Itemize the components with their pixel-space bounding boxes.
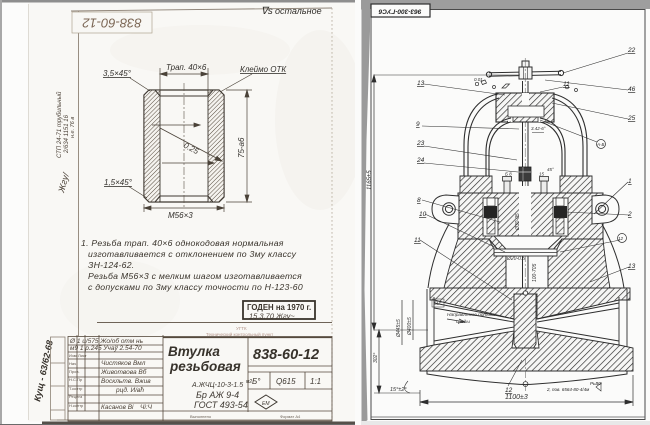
svg-text:Нач.: Нач. <box>69 361 77 366</box>
svg-text:13: 13 <box>417 80 425 87</box>
svg-text:РьВО: РьВО <box>590 381 602 386</box>
svg-text:8: 8 <box>417 197 421 204</box>
svg-text:м9 1 р.245 Учаў 2.54-70: м9 1 р.245 Учаў 2.54-70 <box>70 344 142 352</box>
svg-text:Трап. 40×6: Трап. 40×6 <box>166 63 207 72</box>
svg-text:12: 12 <box>618 236 624 241</box>
svg-text:Б°: Б° <box>252 377 261 386</box>
svg-text:2: 2 <box>627 211 632 218</box>
svg-text:1,5×45°: 1,5×45° <box>104 178 133 187</box>
svg-text:100-705: 100-705 <box>532 263 538 282</box>
svg-text:Q615: Q615 <box>276 377 296 386</box>
svg-text:3,5×45°: 3,5×45° <box>103 69 132 78</box>
svg-text:Изм.: Изм. <box>69 353 78 358</box>
svg-text:0.01: 0.01 <box>474 77 483 82</box>
svg-text:302°: 302° <box>373 353 379 363</box>
svg-text:остальное: остальное <box>275 6 322 16</box>
svg-text:Животвова Вб: Животвова Вб <box>100 368 147 376</box>
svg-text:1100±3: 1100±3 <box>505 394 528 401</box>
svg-text:Пров.: Пров. <box>69 369 80 374</box>
svg-text:Чі:Ч: Чі:Ч <box>140 403 153 411</box>
svg-text:Ø400±5: Ø400±5 <box>407 317 413 336</box>
svg-text:15.3.70 Жгу~: 15.3.70 Жгу~ <box>249 312 295 321</box>
svg-text:11: 11 <box>414 237 421 244</box>
svg-text:24: 24 <box>416 157 425 164</box>
svg-text:Воскльтв. Вжив: Воскльтв. Вжив <box>101 378 151 385</box>
svg-text:Формат А4: Формат А4 <box>280 414 301 419</box>
svg-text:2, пов. 6564-80-4/4м: 2, пов. 6564-80-4/4м <box>546 387 589 392</box>
svg-text:46: 46 <box>628 86 636 93</box>
svg-text:м2: м2 <box>246 379 252 385</box>
svg-text:Реценз: Реценз <box>69 394 82 399</box>
svg-text:50°: 50° <box>434 301 442 307</box>
svg-text:Ø20-0.5: Ø20-0.5 <box>506 256 525 262</box>
svg-text:изготавливается с отклонением: изготавливается с отклонением по 3му кла… <box>88 249 297 259</box>
svg-text:Ø30-05: Ø30-05 <box>515 213 521 231</box>
svg-text:Выполнено: Выполнено <box>190 414 212 419</box>
svg-text:15: 15 <box>539 172 545 177</box>
svg-text:Т.контр: Т.контр <box>69 386 83 391</box>
svg-text:ЕМ: ЕМ <box>262 401 270 407</box>
svg-text:838-60-12: 838-60-12 <box>253 347 319 363</box>
svg-text:Чистяков Вмл: Чистяков Вмл <box>101 360 146 367</box>
svg-text:838-60-12: 838-60-12 <box>82 16 142 31</box>
svg-text:Бр АЖ 9-4: Бр АЖ 9-4 <box>196 390 239 400</box>
svg-text:75-а6: 75-а6 <box>237 137 246 158</box>
svg-text:12: 12 <box>505 387 513 394</box>
svg-text:22: 22 <box>627 47 636 54</box>
svg-text:Ø 1 и/575 Жо/об отм нь: Ø 1 и/575 Жо/об отм нь <box>69 337 144 345</box>
svg-text:Лист: Лист <box>78 353 87 358</box>
svg-text:1. Резьба трап. 40×6 однокод: 1. Резьба трап. 40×6 однокодовая нормаль… <box>81 238 284 248</box>
svg-text:Направление потока: Направление потока <box>447 312 495 318</box>
svg-text:3.42-6°: 3.42-6° <box>531 126 546 131</box>
svg-text:рцд. И/вћ: рцд. И/вћ <box>115 386 144 394</box>
svg-text:Б 8: Б 8 <box>505 172 512 177</box>
svg-text:1165±5: 1165±5 <box>367 170 373 190</box>
svg-text:А-Б: А-Б <box>596 142 605 147</box>
svg-text:н.е. 76 в: н.е. 76 в <box>70 117 76 138</box>
svg-text:1: 1 <box>628 178 632 185</box>
svg-text:963-300-ГУС6: 963-300-ГУС6 <box>378 7 421 14</box>
svg-text:9: 9 <box>416 121 420 128</box>
svg-text:∇s: ∇s <box>261 6 273 17</box>
svg-text:Клеймо ОТК: Клеймо ОТК <box>240 65 287 74</box>
svg-text:СТП 24-71 трубильный: СТП 24-71 трубильный <box>56 91 63 158</box>
svg-text:с допусками по 3му классу то: с допусками по 3му классу точности по Н-… <box>88 282 303 292</box>
svg-text:Касанов Ві: Касанов Ві <box>101 403 134 411</box>
svg-text:45°: 45° <box>547 167 554 172</box>
svg-text:М56×3: М56×3 <box>168 211 193 220</box>
svg-text:Втулка: Втулка <box>168 344 220 359</box>
svg-text:1:1: 1:1 <box>310 377 321 386</box>
svg-text:ГОСТ 493-54: ГОСТ 493-54 <box>194 400 248 410</box>
svg-text:УГТК: УГТК <box>236 326 247 331</box>
svg-text:Ø445±5: Ø445±5 <box>396 319 402 338</box>
svg-text:11: 11 <box>563 81 570 88</box>
svg-text:Резьба М56×3 с мелким шагом: Резьба М56×3 с мелким шагом изготавливае… <box>88 271 302 281</box>
svg-text:25: 25 <box>627 115 636 122</box>
svg-text:А.ЖЧЦ-10-3-1.5: А.ЖЧЦ-10-3-1.5 <box>191 382 243 389</box>
svg-text:резьбовая: резьбовая <box>169 359 241 374</box>
svg-text:Н.С.Пр: Н.С.Пр <box>69 377 83 382</box>
svg-text:10: 10 <box>419 211 427 218</box>
svg-text:ЗН-124-62.: ЗН-124-62. <box>88 260 134 270</box>
svg-text:23: 23 <box>416 140 425 147</box>
svg-text:13: 13 <box>628 263 636 270</box>
svg-text:Н.контр: Н.контр <box>69 403 84 408</box>
